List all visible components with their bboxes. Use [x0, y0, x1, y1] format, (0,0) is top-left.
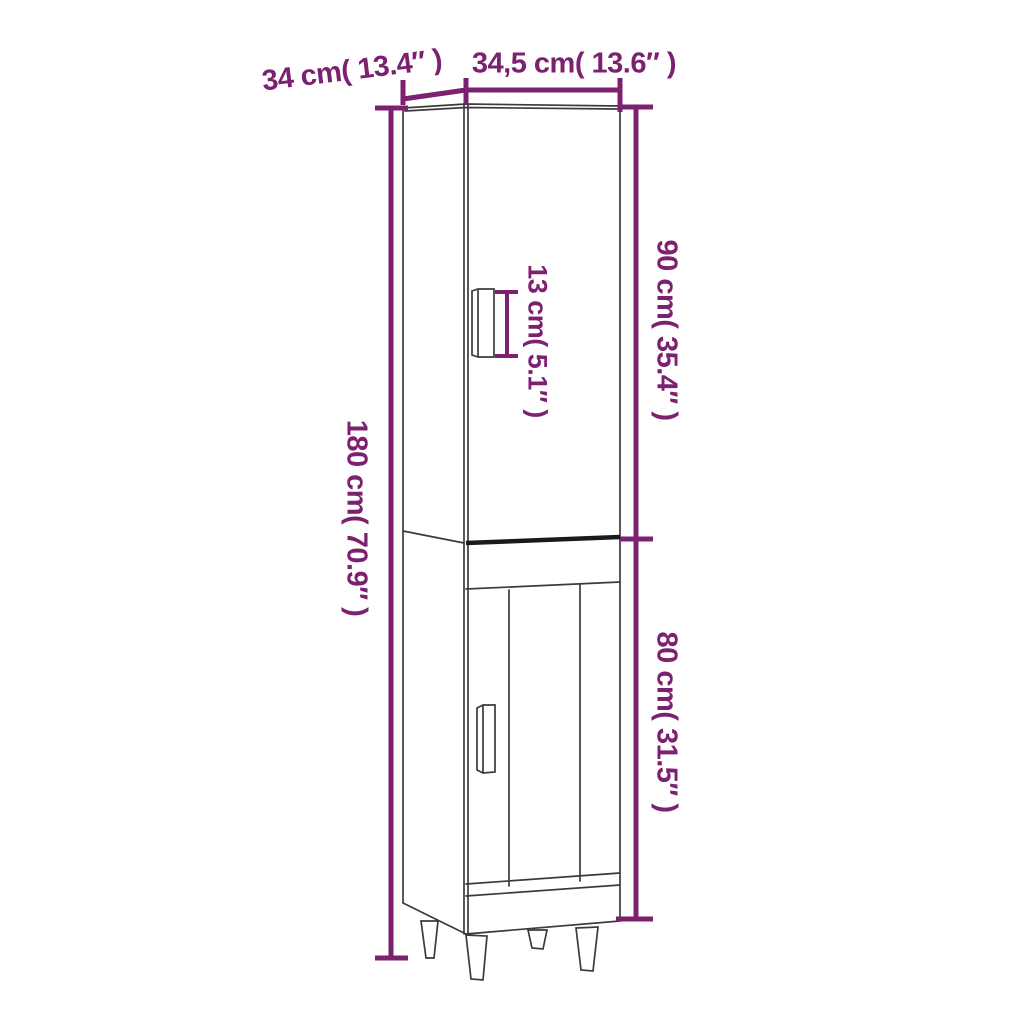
cabinet-junction-line [466, 537, 620, 543]
dimension-label-handle: 13 cm( 5.1″ ) [522, 264, 553, 418]
leg-front-left [466, 935, 487, 980]
dimension-label-height-lower: 80 cm( 31.5″ ) [650, 632, 683, 813]
cabinet-outline [403, 104, 620, 934]
bottom-rail-upper-line [466, 873, 620, 884]
dimension-label-height-total: 180 cm( 70.9″ ) [340, 420, 373, 617]
lower-section-top-line [466, 582, 620, 589]
dimension-lines [375, 78, 653, 958]
dimension-line-handle [495, 292, 518, 356]
leg-right [576, 927, 598, 971]
upper-door-handle [472, 289, 494, 357]
leg-back-left [421, 921, 438, 958]
cabinet-diagram [0, 0, 1024, 1024]
lower-door-handle [477, 705, 495, 773]
dimension-line-depth [403, 80, 466, 105]
dimension-line-height-upper [620, 107, 653, 539]
cabinet-top-edge-inner [405, 108, 617, 112]
dimension-line-height-lower [616, 539, 653, 919]
dimension-label-height-upper: 90 cm( 35.4″ ) [650, 240, 683, 421]
bottom-rail-lower-line [466, 885, 620, 896]
dimension-label-width: 34,5 cm( 13.6″ ) [472, 48, 676, 81]
product-dimension-image: 34 cm( 13.4″ ) 34,5 cm( 13.6″ ) 90 cm( 3… [0, 0, 1024, 1024]
leg-middle-back [528, 930, 547, 949]
cabinet-side-junction-line [403, 531, 464, 543]
